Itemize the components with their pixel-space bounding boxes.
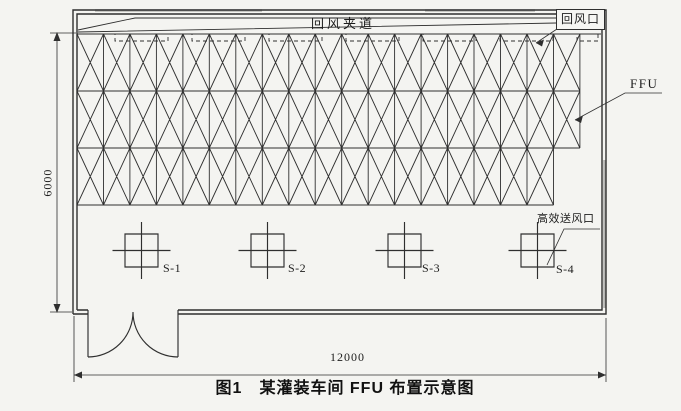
supply-point-label-s4: S-4: [556, 263, 574, 276]
ffu-grid: [77, 34, 601, 205]
room-inner-wall: [77, 14, 602, 310]
supply-point-label-s1: S-1: [163, 262, 181, 275]
hepa-supply-outlet-label: 高效送风口: [537, 213, 595, 225]
supply-point-label-s3: S-3: [422, 262, 440, 275]
dimension-width-value: 12000: [320, 351, 375, 364]
figure-caption: 图1 某灌装车间 FFU 布置示意图: [20, 380, 670, 398]
room-outer-wall: [73, 10, 606, 314]
return-air-passage-label: 回风夹道: [311, 17, 375, 31]
dimension-height-value: 6000: [41, 163, 54, 203]
double-door: [88, 310, 178, 357]
ffu-label: FFU: [630, 77, 658, 91]
dimension-line-width: [74, 316, 606, 382]
hepa-outlet-leader: [547, 229, 600, 265]
dimension-arrow-right: [598, 372, 606, 379]
dimension-arrow-left: [74, 372, 82, 379]
supply-point-label-s2: S-2: [288, 262, 306, 275]
return-air-outlet-label: 回风口: [556, 9, 605, 30]
ffu-leader: [575, 93, 662, 120]
figure-ffu-layout: 回风夹道 回风口 FFU 高效送风口 S-1 S-2 S-3 S-4 6000 …: [0, 0, 681, 411]
